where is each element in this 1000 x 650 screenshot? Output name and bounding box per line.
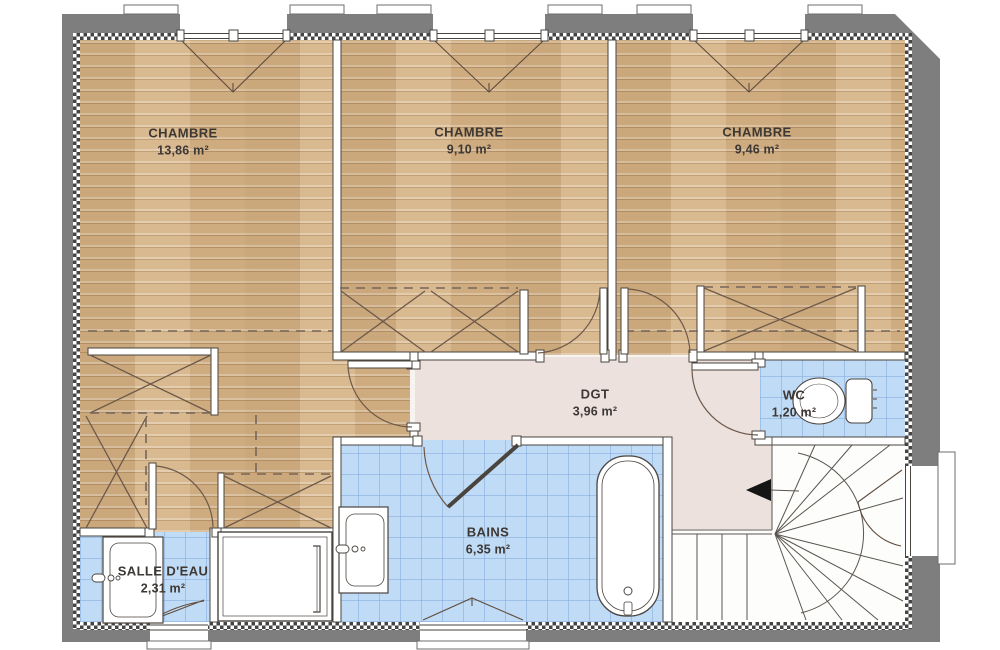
door-arc-chambre3 [628, 289, 690, 353]
room-name: SALLE D'EAU [118, 563, 209, 580]
room-label-chambre-3: CHAMBRE 9,46 m² [722, 124, 791, 157]
washbasin-bains [336, 507, 388, 593]
stair-direction-arrow [746, 479, 771, 501]
winder-treads [775, 445, 903, 620]
room-area: 9,10 m² [434, 141, 503, 157]
door-arc-chambre1 [348, 365, 412, 427]
room-name: CHAMBRE [434, 124, 503, 141]
room-area: 6,35 m² [466, 541, 510, 557]
room-area: 2,31 m² [118, 580, 209, 596]
room-area: 1,20 m² [772, 404, 816, 420]
door-arc-wc [692, 370, 758, 435]
door-leaf-chambre3 [621, 288, 628, 354]
room-label-wc: WC 1,20 m² [772, 387, 816, 420]
door-arc-bains [424, 447, 448, 507]
stair-handrail-arc [798, 453, 864, 613]
door-leaf-salledeau [149, 463, 156, 529]
door-leaf-wc [692, 363, 758, 370]
room-label-chambre-1: CHAMBRE 13,86 m² [148, 125, 217, 158]
room-area: 3,96 m² [573, 403, 617, 419]
room-name: DGT [573, 386, 617, 403]
room-area: 13,86 m² [148, 142, 217, 158]
door-leaf-chambre2 [600, 288, 607, 354]
floor-plan: CHAMBRE 13,86 m² CHAMBRE 9,10 m² CHAMBRE… [0, 0, 1000, 650]
door-leaf-chambre1 [348, 361, 412, 368]
room-label-bains: BAINS 6,35 m² [466, 524, 510, 557]
door-arc-salledeau [156, 466, 213, 527]
room-name: CHAMBRE [148, 125, 217, 142]
room-label-salle-deau: SALLE D'EAU 2,31 m² [118, 563, 209, 596]
door-leaf-bains [448, 445, 518, 507]
room-name: CHAMBRE [722, 124, 791, 141]
room-label-dgt: DGT 3,96 m² [573, 386, 617, 419]
room-name: WC [772, 387, 816, 404]
door-arc-chambre2 [538, 289, 600, 353]
room-area: 9,46 m² [722, 141, 791, 157]
room-name: BAINS [466, 524, 510, 541]
bathtub [597, 456, 659, 616]
shower [218, 532, 332, 621]
room-label-chambre-2: CHAMBRE 9,10 m² [434, 124, 503, 157]
staircase [672, 437, 903, 620]
